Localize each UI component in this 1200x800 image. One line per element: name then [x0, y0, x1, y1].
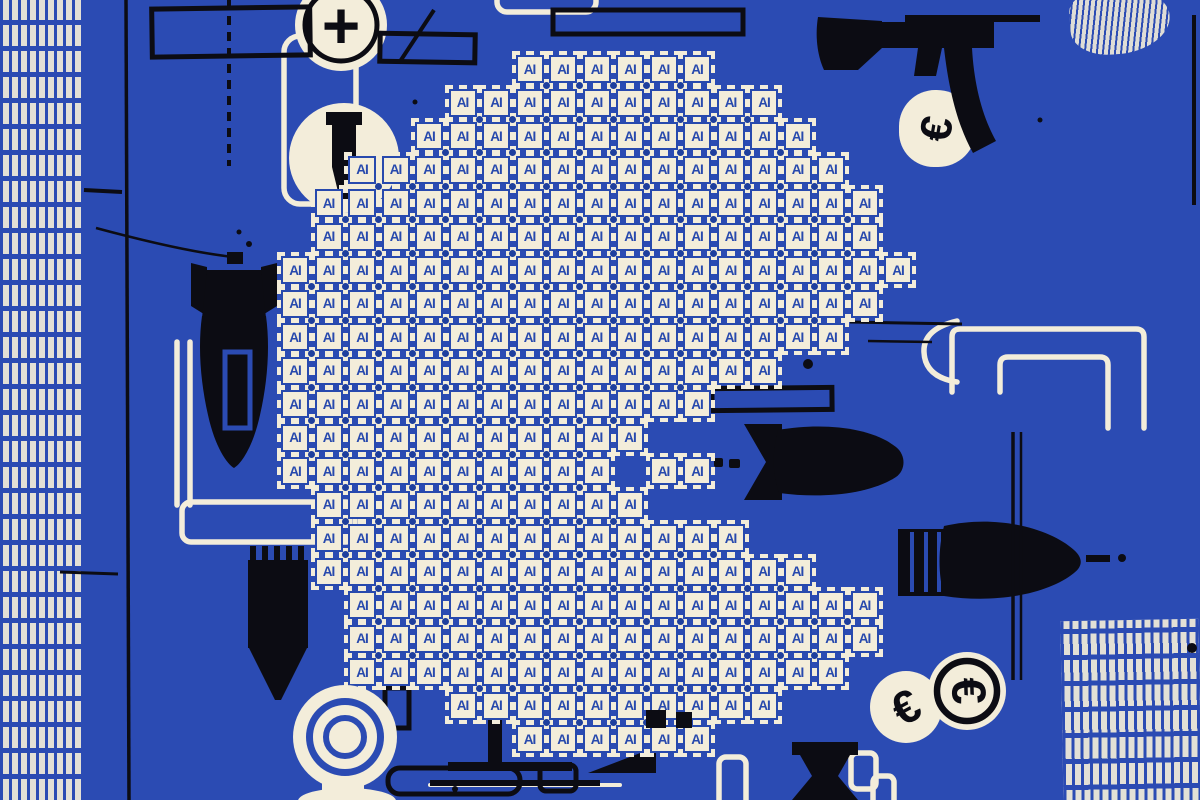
ai-chip-label: AI — [683, 290, 711, 318]
circuit-node-dot — [509, 451, 516, 458]
ai-chip-label: AI — [650, 390, 678, 418]
ai-chip-label: AI — [315, 323, 343, 351]
ai-chip: AI — [646, 654, 682, 690]
ai-chip-label: AI — [616, 156, 644, 184]
ai-chip-label: AI — [516, 692, 544, 720]
circuit-node-dot — [476, 484, 483, 491]
ai-chip: AI — [344, 152, 380, 188]
ai-chip-label: AI — [348, 290, 376, 318]
circuit-node-dot — [375, 350, 382, 357]
ai-chip-label: AI — [784, 658, 812, 686]
ai-chip-label: AI — [482, 692, 510, 720]
ai-chip: AI — [545, 654, 581, 690]
ai-chip: AI — [713, 621, 749, 657]
ai-chip-label: AI — [583, 156, 611, 184]
circuit-node-dot — [576, 216, 583, 223]
ai-chip: AI — [378, 587, 414, 623]
ai-chip: AI — [445, 520, 481, 556]
circuit-node-dot — [543, 317, 550, 324]
circuit-node-dot — [643, 551, 650, 558]
ai-chip-label: AI — [817, 290, 845, 318]
ai-chip-label: AI — [717, 658, 745, 686]
circuit-node-dot — [576, 551, 583, 558]
circuit-node-dot — [442, 551, 449, 558]
ai-chip-label: AI — [415, 524, 443, 552]
ai-chip-label: AI — [717, 625, 745, 653]
circuit-node-dot — [543, 82, 550, 89]
ai-chip: AI — [545, 420, 581, 456]
ai-chip-label: AI — [348, 558, 376, 586]
ai-chip-label: AI — [784, 223, 812, 251]
circuit-node-dot — [576, 283, 583, 290]
ai-chip-label: AI — [382, 156, 410, 184]
ai-chip: AI — [579, 252, 615, 288]
ai-chip: AI — [478, 118, 514, 154]
ai-chip: AI — [746, 353, 782, 389]
circuit-node-dot — [710, 618, 717, 625]
ai-chip: AI — [411, 654, 447, 690]
ai-chip: AI — [545, 319, 581, 355]
ai-chip-label: AI — [750, 658, 778, 686]
ai-chip-label: AI — [650, 524, 678, 552]
circuit-node-dot — [442, 250, 449, 257]
ai-chip-label: AI — [516, 256, 544, 284]
circuit-node-dot — [710, 183, 717, 190]
circuit-node-dot — [375, 216, 382, 223]
ai-chip-label: AI — [482, 223, 510, 251]
ai-chip-label: AI — [750, 256, 778, 284]
ai-chip: AI — [679, 219, 715, 255]
circuit-node-dot — [576, 618, 583, 625]
circuit-node-dot — [342, 551, 349, 558]
circuit-node-dot — [811, 283, 818, 290]
ai-chip: AI — [780, 152, 816, 188]
ai-chip-label: AI — [281, 457, 309, 485]
ai-chip: AI — [679, 85, 715, 121]
ai-chip: AI — [847, 621, 883, 657]
circuit-node-dot — [710, 149, 717, 156]
ai-chip-label: AI — [683, 256, 711, 284]
ai-chip-label: AI — [650, 223, 678, 251]
ai-chip-label: AI — [717, 591, 745, 619]
ai-chip: AI — [679, 185, 715, 221]
ai-chip: AI — [612, 587, 648, 623]
circuit-node-dot — [643, 685, 650, 692]
ai-chip: AI — [445, 185, 481, 221]
ai-chip-label: AI — [583, 122, 611, 150]
circuit-node-dot — [643, 216, 650, 223]
ai-chip: AI — [813, 621, 849, 657]
circuit-node-dot — [777, 250, 784, 257]
ai-chip-label: AI — [616, 189, 644, 217]
ai-chip-label: AI — [650, 55, 678, 83]
ai-chip: AI — [579, 688, 615, 724]
circuit-node-dot — [476, 451, 483, 458]
ai-chip: AI — [411, 286, 447, 322]
ai-chip-label: AI — [616, 658, 644, 686]
circuit-node-dot — [576, 82, 583, 89]
circuit-node-dot — [811, 317, 818, 324]
circuit-node-dot — [509, 652, 516, 659]
ai-chip-label: AI — [750, 189, 778, 217]
ai-chip-label: AI — [348, 390, 376, 418]
ai-chip-label: AI — [750, 625, 778, 653]
ai-chip: AI — [344, 621, 380, 657]
circuit-node-dot — [744, 317, 751, 324]
circuit-node-dot — [610, 317, 617, 324]
ai-chip: AI — [646, 152, 682, 188]
ai-chip-label: AI — [549, 256, 577, 284]
ai-chip-label: AI — [382, 290, 410, 318]
circuit-node-dot — [442, 618, 449, 625]
ai-chip-label: AI — [650, 558, 678, 586]
ai-chip-label: AI — [549, 390, 577, 418]
ai-chip: AI — [646, 621, 682, 657]
circuit-node-dot — [710, 551, 717, 558]
ai-chip: AI — [679, 319, 715, 355]
circuit-node-dot — [543, 216, 550, 223]
ai-chip-label: AI — [750, 558, 778, 586]
ai-chip-label: AI — [482, 89, 510, 117]
ai-chip: AI — [411, 520, 447, 556]
ai-chip-label: AI — [683, 122, 711, 150]
circuit-node-dot — [509, 350, 516, 357]
ai-chip-label: AI — [482, 457, 510, 485]
circuit-node-dot — [476, 518, 483, 525]
ai-chip: AI — [813, 185, 849, 221]
ai-chip-cluster: AIAIAIAIAIAIAIAIAIAIAIAIAIAIAIAIAIAIAIAI… — [0, 0, 1200, 800]
ai-chip-label: AI — [851, 223, 879, 251]
ai-chip: AI — [612, 554, 648, 590]
ai-chip: AI — [445, 487, 481, 523]
ai-chip-label: AI — [817, 323, 845, 351]
circuit-node-dot — [509, 484, 516, 491]
ai-chip: AI — [746, 587, 782, 623]
circuit-node-dot — [375, 518, 382, 525]
ai-chip-label: AI — [616, 491, 644, 519]
circuit-node-dot — [308, 283, 315, 290]
ai-chip-label: AI — [449, 692, 477, 720]
circuit-node-dot — [342, 384, 349, 391]
ai-chip-label: AI — [683, 323, 711, 351]
ai-chip: AI — [646, 286, 682, 322]
ai-chip-label: AI — [449, 290, 477, 318]
ai-chip-label: AI — [516, 625, 544, 653]
ai-chip-label: AI — [683, 658, 711, 686]
circuit-node-dot — [409, 250, 416, 257]
ai-chip-label: AI — [315, 457, 343, 485]
ai-chip: AI — [545, 219, 581, 255]
ai-chip-label: AI — [717, 524, 745, 552]
ai-chip: AI — [411, 319, 447, 355]
circuit-node-dot — [409, 518, 416, 525]
circuit-node-dot — [643, 585, 650, 592]
circuit-node-dot — [576, 518, 583, 525]
ai-chip: AI — [646, 252, 682, 288]
ai-chip: AI — [445, 453, 481, 489]
circuit-node-dot — [576, 652, 583, 659]
circuit-node-dot — [576, 149, 583, 156]
ai-chip-label: AI — [315, 424, 343, 452]
burnt-chip-square — [676, 712, 692, 728]
ai-chip: AI — [478, 353, 514, 389]
ai-chip-label: AI — [817, 658, 845, 686]
ai-chip: AI — [679, 386, 715, 422]
ai-chip: AI — [713, 319, 749, 355]
circuit-node-dot — [677, 82, 684, 89]
circuit-node-dot — [543, 149, 550, 156]
ai-chip-label: AI — [583, 390, 611, 418]
ai-chip: AI — [512, 51, 548, 87]
ai-chip: AI — [478, 286, 514, 322]
ai-chip: AI — [445, 353, 481, 389]
ai-chip: AI — [411, 252, 447, 288]
circuit-node-dot — [543, 685, 550, 692]
ai-chip: AI — [411, 386, 447, 422]
ai-chip-label: AI — [851, 290, 879, 318]
ai-chip: AI — [679, 554, 715, 590]
ai-chip-label: AI — [482, 256, 510, 284]
circuit-node-dot — [476, 250, 483, 257]
circuit-node-dot — [442, 652, 449, 659]
ai-chip: AI — [311, 520, 347, 556]
ai-chip-label: AI — [415, 156, 443, 184]
circuit-node-dot — [677, 384, 684, 391]
ai-chip: AI — [746, 621, 782, 657]
ai-chip: AI — [545, 554, 581, 590]
ai-chip-label: AI — [382, 424, 410, 452]
ai-chip-label: AI — [549, 290, 577, 318]
circuit-node-dot — [342, 484, 349, 491]
ai-chip: AI — [478, 554, 514, 590]
ai-chip-label: AI — [784, 323, 812, 351]
circuit-node-dot — [476, 149, 483, 156]
ai-chip: AI — [646, 554, 682, 590]
ai-chip-label: AI — [449, 156, 477, 184]
ai-chip: AI — [612, 319, 648, 355]
circuit-node-dot — [409, 451, 416, 458]
ai-chip-label: AI — [817, 189, 845, 217]
circuit-node-dot — [576, 585, 583, 592]
ai-chip: AI — [847, 219, 883, 255]
ai-chip: AI — [378, 219, 414, 255]
ai-chip: AI — [344, 185, 380, 221]
circuit-node-dot — [744, 652, 751, 659]
ai-chip: AI — [512, 520, 548, 556]
ai-chip: AI — [512, 219, 548, 255]
ai-chip: AI — [344, 587, 380, 623]
circuit-node-dot — [409, 585, 416, 592]
ai-chip: AI — [612, 654, 648, 690]
ai-chip: AI — [579, 420, 615, 456]
circuit-node-dot — [308, 317, 315, 324]
ai-chip-label: AI — [650, 256, 678, 284]
target-icon — [293, 685, 397, 789]
ai-chip: AI — [880, 252, 916, 288]
circuit-node-dot — [543, 283, 550, 290]
ai-chip: AI — [813, 587, 849, 623]
ai-chip: AI — [311, 554, 347, 590]
circuit-node-dot — [710, 317, 717, 324]
ai-chip: AI — [780, 185, 816, 221]
ai-chip-label: AI — [583, 558, 611, 586]
ai-chip-label: AI — [817, 256, 845, 284]
circuit-node-dot — [509, 116, 516, 123]
ai-chip: AI — [378, 386, 414, 422]
circuit-node-dot — [677, 183, 684, 190]
circuit-node-dot — [476, 116, 483, 123]
ai-chip: AI — [478, 185, 514, 221]
circuit-node-dot — [442, 216, 449, 223]
circuit-node-dot — [677, 317, 684, 324]
ai-chip: AI — [311, 353, 347, 389]
ai-chip-label: AI — [750, 290, 778, 318]
ai-chip-label: AI — [482, 390, 510, 418]
ai-chip-label: AI — [382, 524, 410, 552]
ai-chip: AI — [646, 219, 682, 255]
ai-chip: AI — [579, 654, 615, 690]
ai-chip-label: AI — [750, 591, 778, 619]
ai-chip: AI — [813, 252, 849, 288]
ai-chip: AI — [478, 319, 514, 355]
ai-chip: AI — [579, 487, 615, 523]
circuit-node-dot — [543, 350, 550, 357]
circuit-node-dot — [442, 585, 449, 592]
ai-chip-label: AI — [851, 591, 879, 619]
circuit-node-dot — [409, 551, 416, 558]
circuit-node-dot — [476, 618, 483, 625]
circuit-node-dot — [476, 384, 483, 391]
ai-chip: AI — [713, 118, 749, 154]
ai-chip: AI — [713, 85, 749, 121]
circuit-node-dot — [476, 317, 483, 324]
ai-chip: AI — [579, 219, 615, 255]
ai-chip-label: AI — [616, 591, 644, 619]
ai-chip: AI — [512, 420, 548, 456]
ai-chip-label: AI — [516, 290, 544, 318]
ai-chip-label: AI — [583, 424, 611, 452]
ai-chip: AI — [646, 453, 682, 489]
ai-chip: AI — [612, 420, 648, 456]
ai-chip: AI — [746, 688, 782, 724]
ai-chip: AI — [512, 319, 548, 355]
circuit-node-dot — [409, 283, 416, 290]
circuit-node-dot — [610, 116, 617, 123]
ai-chip: AI — [344, 386, 380, 422]
ai-chip: AI — [311, 252, 347, 288]
circuit-node-dot — [710, 116, 717, 123]
circuit-node-dot — [342, 283, 349, 290]
ai-chip: AI — [344, 353, 380, 389]
ai-chip-label: AI — [315, 524, 343, 552]
circuit-node-dot — [610, 518, 617, 525]
circuit-node-dot — [509, 183, 516, 190]
ai-chip-label: AI — [449, 223, 477, 251]
circuit-node-dot — [677, 283, 684, 290]
ai-chip-label: AI — [415, 424, 443, 452]
ai-chip: AI — [612, 520, 648, 556]
circuit-node-dot — [576, 317, 583, 324]
ai-chip-label: AI — [750, 323, 778, 351]
circuit-node-dot — [476, 551, 483, 558]
circuit-node-dot — [543, 484, 550, 491]
ai-chip-label: AI — [549, 658, 577, 686]
ai-chip-label: AI — [281, 290, 309, 318]
ai-chip: AI — [411, 621, 447, 657]
ai-chip-label: AI — [348, 189, 376, 217]
ai-chip: AI — [445, 587, 481, 623]
ai-chip: AI — [713, 185, 749, 221]
ai-chip-label: AI — [516, 357, 544, 385]
ai-chip: AI — [378, 152, 414, 188]
ai-chip: AI — [579, 185, 615, 221]
ai-chip-label: AI — [415, 290, 443, 318]
ai-chip-label: AI — [482, 558, 510, 586]
ai-chip-label: AI — [516, 89, 544, 117]
ai-chip: AI — [746, 185, 782, 221]
ai-chip-label: AI — [549, 122, 577, 150]
circuit-node-dot — [409, 484, 416, 491]
ai-chip-label: AI — [549, 524, 577, 552]
ai-chip-label: AI — [549, 625, 577, 653]
ai-chip: AI — [646, 85, 682, 121]
ai-chip-label: AI — [449, 323, 477, 351]
ai-chip-label: AI — [583, 658, 611, 686]
ai-chip-label: AI — [549, 591, 577, 619]
ai-chip: AI — [780, 621, 816, 657]
ai-chip-label: AI — [683, 457, 711, 485]
ai-chip: AI — [445, 219, 481, 255]
circuit-node-dot — [509, 585, 516, 592]
ai-chip-label: AI — [482, 658, 510, 686]
ai-chip: AI — [478, 386, 514, 422]
circuit-node-dot — [375, 283, 382, 290]
ai-chip: AI — [679, 353, 715, 389]
ai-chip-label: AI — [348, 658, 376, 686]
ai-chip: AI — [679, 587, 715, 623]
ai-chip: AI — [545, 721, 581, 757]
ai-chip: AI — [478, 219, 514, 255]
ai-chip: AI — [512, 654, 548, 690]
ai-chip: AI — [545, 487, 581, 523]
ai-chip: AI — [512, 587, 548, 623]
ai-chip: AI — [780, 587, 816, 623]
ai-chip-label: AI — [549, 424, 577, 452]
circuit-node-dot — [744, 116, 751, 123]
ai-chip: AI — [311, 386, 347, 422]
ai-chip-label: AI — [415, 323, 443, 351]
circuit-node-dot — [677, 551, 684, 558]
ai-chip-label: AI — [415, 122, 443, 150]
ai-chip: AI — [545, 353, 581, 389]
ai-chip-label: AI — [348, 256, 376, 284]
circuit-node-dot — [677, 216, 684, 223]
ai-chip-label: AI — [616, 55, 644, 83]
circuit-node-dot — [610, 618, 617, 625]
ai-chip: AI — [679, 453, 715, 489]
circuit-node-dot — [811, 216, 818, 223]
ai-chip: AI — [445, 85, 481, 121]
ai-chip: AI — [646, 520, 682, 556]
ai-chip-label: AI — [382, 591, 410, 619]
ai-chip-label: AI — [449, 558, 477, 586]
circuit-node-dot — [844, 250, 851, 257]
circuit-node-dot — [543, 250, 550, 257]
ai-chip-label: AI — [449, 457, 477, 485]
ai-chip-label: AI — [315, 357, 343, 385]
ai-chip: AI — [512, 621, 548, 657]
ai-chip: AI — [612, 353, 648, 389]
